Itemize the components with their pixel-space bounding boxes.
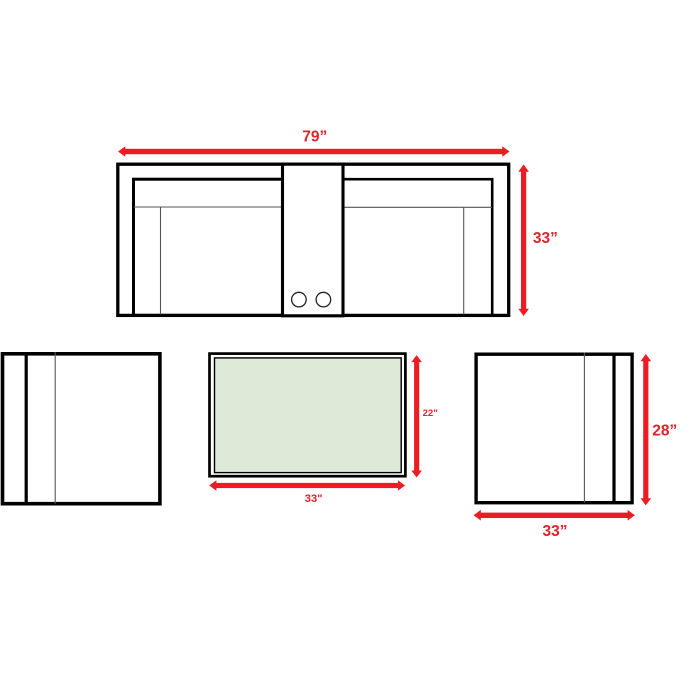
svg-text:33": 33" bbox=[305, 493, 323, 505]
svg-text:22": 22" bbox=[423, 408, 438, 419]
svg-text:28”: 28” bbox=[652, 423, 677, 440]
svg-text:33”: 33” bbox=[543, 523, 568, 540]
svg-text:79”: 79” bbox=[302, 128, 327, 145]
svg-text:33”: 33” bbox=[533, 230, 558, 247]
